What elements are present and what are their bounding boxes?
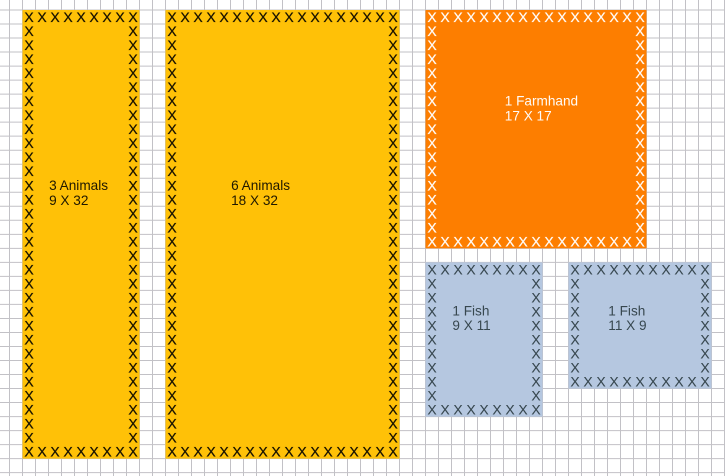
svg-text:XXXXXXXXXXXXXXX: XXXXXXXXXXXXXXX (635, 23, 645, 235)
svg-text:XXXXXXXXX: XXXXXXXXX (427, 402, 541, 418)
svg-text:9 X 32: 9 X 32 (49, 193, 88, 208)
svg-text:XXXXXXXXXXXXXXX: XXXXXXXXXXXXXXX (427, 23, 437, 235)
svg-text:XXXXXXXXXXXXXXXXXXXXXXXXXXXXXX: XXXXXXXXXXXXXXXXXXXXXXXXXXXXXX (128, 23, 138, 446)
svg-text:XXXXXXXXX: XXXXXXXXX (427, 275, 437, 403)
svg-text:1 Fish: 1 Fish (608, 304, 645, 319)
svg-text:XXXXXXXXXXXXXXXXXXXXXXXXXXXXXX: XXXXXXXXXXXXXXXXXXXXXXXXXXXXXX (167, 23, 177, 446)
svg-text:XXXXXXXXXXXXXXXXX: XXXXXXXXXXXXXXXXX (427, 9, 645, 25)
svg-text:XXXXXXXXXXX: XXXXXXXXXXX (570, 261, 710, 277)
svg-text:XXXXXXXXX: XXXXXXXXX (427, 261, 541, 277)
svg-text:XXXXXXXXXXXXXXXXX: XXXXXXXXXXXXXXXXX (427, 233, 645, 249)
svg-text:XXXXXXXXXXXXXXXXXXXXXXXXXXXXXX: XXXXXXXXXXXXXXXXXXXXXXXXXXXXXX (24, 23, 34, 446)
svg-text:XXXXXXX: XXXXXXX (570, 275, 580, 375)
svg-text:XXXXXXXXX: XXXXXXXXX (24, 9, 138, 25)
svg-text:3 Animals: 3 Animals (49, 178, 108, 193)
svg-text:1 Fish: 1 Fish (452, 304, 489, 319)
svg-text:XXXXXXXXXXXXXXXXXXXXXXXXXXXXXX: XXXXXXXXXXXXXXXXXXXXXXXXXXXXXX (388, 23, 398, 446)
svg-text:17 X 17: 17 X 17 (505, 108, 552, 123)
svg-text:XXXXXXXXXXX: XXXXXXXXXXX (570, 374, 710, 390)
svg-text:1 Farmhand: 1 Farmhand (505, 94, 578, 109)
svg-text:9 X 11: 9 X 11 (452, 318, 490, 333)
svg-text:XXXXXXXXX: XXXXXXXXX (24, 444, 138, 460)
svg-text:XXXXXXX: XXXXXXX (700, 275, 710, 375)
svg-text:XXXXXXXXX: XXXXXXXXX (531, 275, 541, 403)
svg-text:18 X 32: 18 X 32 (231, 193, 278, 208)
svg-text:11 X 9: 11 X 9 (608, 318, 646, 333)
svg-text:6 Animals: 6 Animals (231, 178, 290, 193)
